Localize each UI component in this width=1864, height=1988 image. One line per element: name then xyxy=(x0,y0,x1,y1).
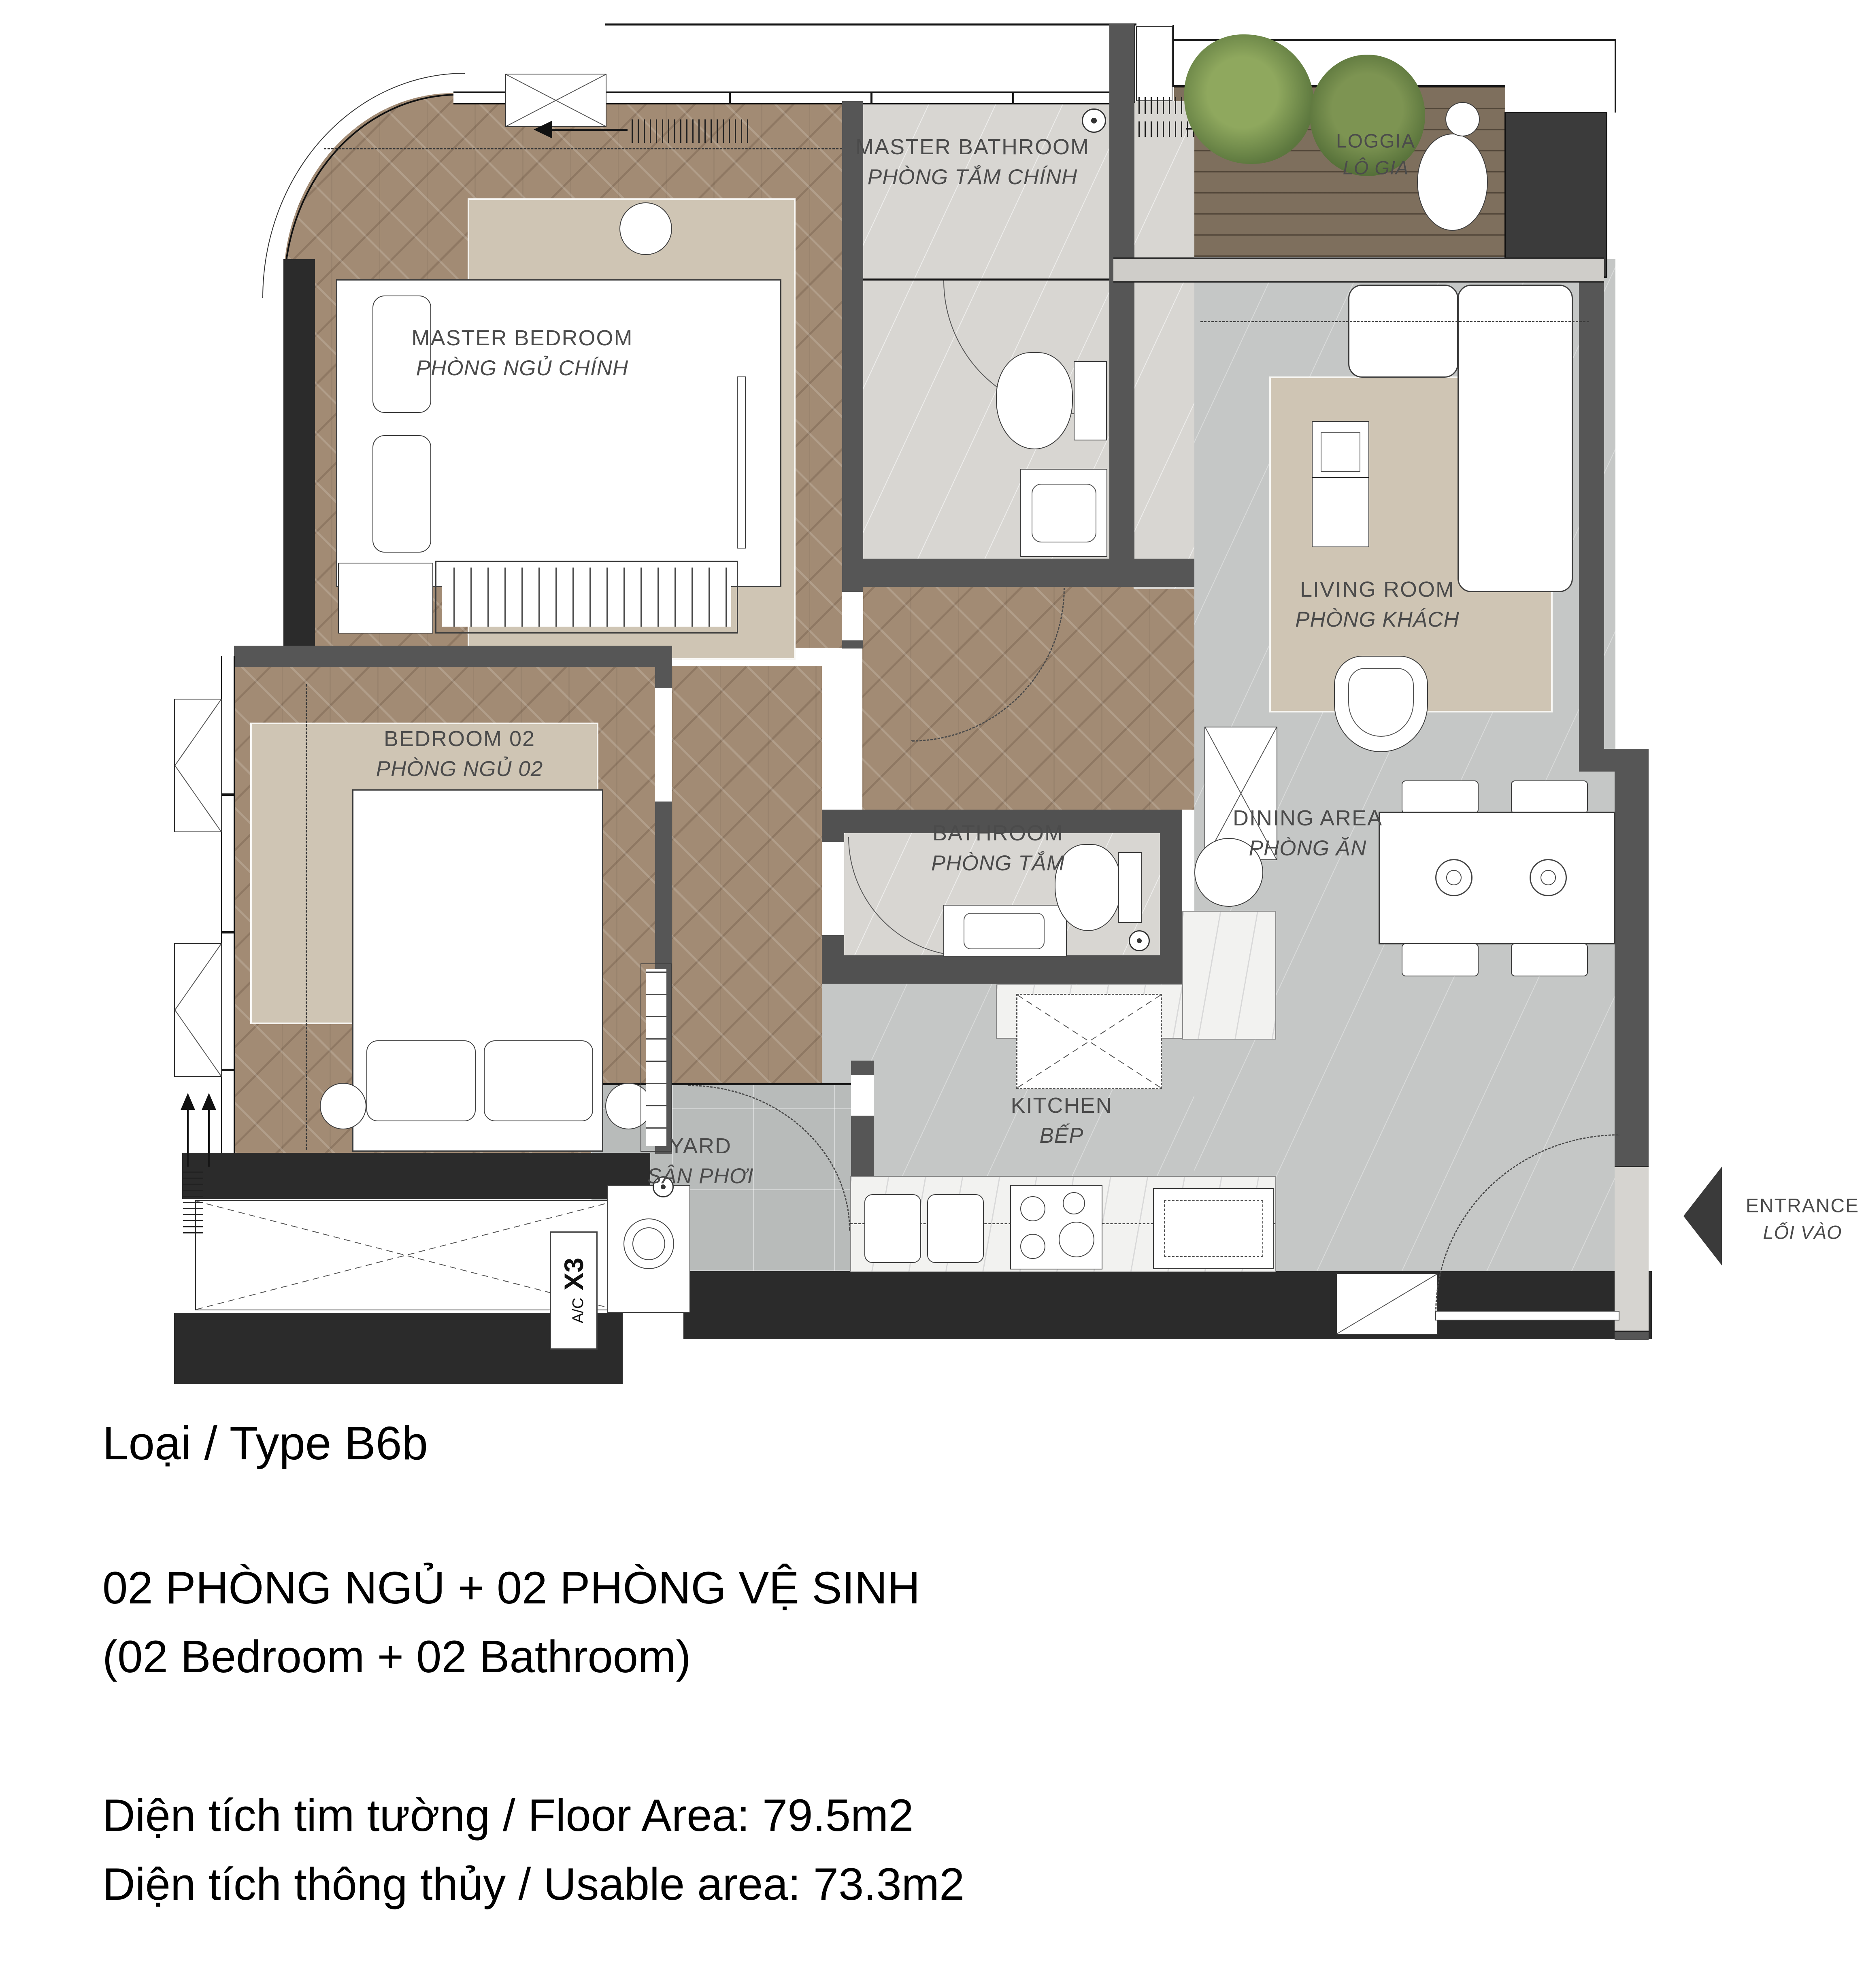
dining-chair xyxy=(1402,780,1479,814)
curtain-line xyxy=(1200,321,1589,322)
usable-area: Diện tích thông thủy / Usable area: 73.3… xyxy=(102,1858,964,1910)
room-label-loggia: LOGGIA LÔ GIA xyxy=(1336,128,1415,181)
coffee-table-tray xyxy=(1321,432,1360,472)
arrow-line xyxy=(551,129,628,131)
wardrobe-master xyxy=(435,561,738,634)
dining-chair xyxy=(1511,780,1588,814)
plant xyxy=(1184,34,1314,164)
floor-hall-strip xyxy=(1134,101,1194,589)
sink-basin xyxy=(964,913,1045,949)
door-opening xyxy=(822,842,844,935)
floor-plan: A/CX3 MASTER BEDROOM PHÒNG NGỦ CHÍNH MAS… xyxy=(0,0,1864,1401)
pillow xyxy=(366,1040,476,1121)
room-label-master-bathroom: MASTER BATHROOM PHÒNG TẮM CHÍNH xyxy=(855,132,1089,192)
dining-table xyxy=(1379,812,1615,944)
plate-symbol xyxy=(1541,870,1556,885)
loggia-sill xyxy=(1113,257,1604,283)
room-label-entrance: ENTRANCE LỐI VÀO xyxy=(1746,1193,1859,1246)
entrance-door-sill xyxy=(1615,1166,1649,1332)
arrow-line xyxy=(187,1110,189,1167)
sink-basin xyxy=(1032,484,1096,542)
pillow xyxy=(372,435,431,553)
curtain-line xyxy=(306,684,307,1150)
arrow-icon xyxy=(202,1093,216,1110)
ac-unit-label-box: A/CX3 xyxy=(550,1231,598,1350)
window-mullion xyxy=(221,931,235,933)
ac-ledge-xbox xyxy=(505,74,606,127)
room-label-dining-area: DINING AREA PHÒNG ĂN xyxy=(1233,803,1383,863)
wall xyxy=(234,646,672,667)
ac-label: A/C xyxy=(570,1298,587,1323)
wall xyxy=(1109,24,1134,559)
door-opening xyxy=(655,688,672,802)
structural-column xyxy=(1504,112,1607,278)
arrow-icon xyxy=(181,1093,195,1110)
insulation-coil xyxy=(183,1167,203,1233)
fridge-space-xbox xyxy=(1016,994,1162,1089)
dining-chair xyxy=(1402,943,1479,976)
insulation-coil xyxy=(632,119,749,143)
sofa xyxy=(1458,285,1573,592)
kitchen-sink-symbol xyxy=(927,1194,984,1263)
floor-area: Diện tích tim tường / Floor Area: 79.5m2 xyxy=(102,1789,913,1841)
ac-count-label: X3 xyxy=(559,1258,589,1291)
boundary-line xyxy=(605,23,1136,26)
wall xyxy=(1579,259,1604,769)
pillow xyxy=(484,1040,593,1121)
window-mullion xyxy=(221,1069,235,1071)
door-opening xyxy=(851,1075,874,1116)
washing-machine-drum xyxy=(632,1227,665,1260)
entry-cabinet xyxy=(1336,1273,1438,1335)
window-mullion xyxy=(221,793,235,796)
room-label-master-bedroom: MASTER BEDROOM PHÒNG NGỦ CHÍNH xyxy=(411,323,633,383)
burner xyxy=(1020,1234,1045,1259)
bench xyxy=(338,563,433,634)
boundary-line xyxy=(1172,25,1174,87)
toilet-symbol xyxy=(996,352,1073,449)
side-table xyxy=(320,1083,366,1129)
entrance-arrow-icon xyxy=(1683,1167,1722,1265)
type-label: Loại / Type B6b xyxy=(102,1416,428,1470)
room-label-yard: YARD SÂN PHƠI xyxy=(647,1131,753,1191)
window-wall xyxy=(221,656,235,1153)
room-label-bedroom-02: BEDROOM 02 PHÒNG NGỦ 02 xyxy=(376,724,543,784)
door-opening xyxy=(842,592,863,640)
toilet-tank xyxy=(1074,361,1107,440)
burner xyxy=(1059,1222,1094,1257)
appliance-inner xyxy=(1164,1200,1263,1257)
loggia-table xyxy=(1417,134,1488,231)
casement-window xyxy=(174,943,222,1077)
armchair-inner xyxy=(1348,668,1414,737)
room-label-living-room: LIVING ROOM PHÒNG KHÁCH xyxy=(1295,574,1460,634)
room-label-bathroom: BATHROOM PHÒNG TẮM xyxy=(931,818,1065,878)
wall xyxy=(182,1153,650,1199)
fan-symbol xyxy=(1082,108,1106,133)
window-mullion xyxy=(729,91,731,104)
floor-hallway xyxy=(672,666,822,1085)
wall xyxy=(283,259,315,648)
mirror xyxy=(737,376,746,549)
room-label-kitchen: KITCHEN BẾP xyxy=(1011,1091,1112,1150)
fan-symbol xyxy=(1129,930,1150,951)
dining-chair xyxy=(1511,943,1588,976)
arrow-line xyxy=(208,1110,210,1167)
shaft-strip xyxy=(1136,26,1172,101)
boundary-line xyxy=(1615,39,1616,113)
burner xyxy=(1020,1196,1045,1221)
wall xyxy=(842,559,1194,587)
arrow-icon xyxy=(534,121,552,138)
burner xyxy=(1063,1192,1085,1214)
window-mullion xyxy=(1012,91,1014,104)
kitchen-sink-symbol xyxy=(864,1194,921,1263)
coffee-table-line xyxy=(1312,477,1369,478)
plate-symbol xyxy=(1446,870,1462,885)
config-en: (02 Bedroom + 02 Bathroom) xyxy=(102,1631,691,1683)
kitchen-counter xyxy=(1182,911,1276,1040)
window-mullion xyxy=(870,91,872,104)
casement-window xyxy=(174,699,222,832)
loggia-stool xyxy=(1445,102,1480,136)
toilet-tank xyxy=(1118,852,1142,923)
curtain-line xyxy=(324,148,842,149)
sofa-chaise xyxy=(1348,285,1458,378)
wardrobe-bedroom-02 xyxy=(640,963,672,1152)
pouf xyxy=(619,202,672,255)
config-vi: 02 PHÒNG NGỦ + 02 PHÒNG VỆ SINH xyxy=(102,1562,920,1614)
